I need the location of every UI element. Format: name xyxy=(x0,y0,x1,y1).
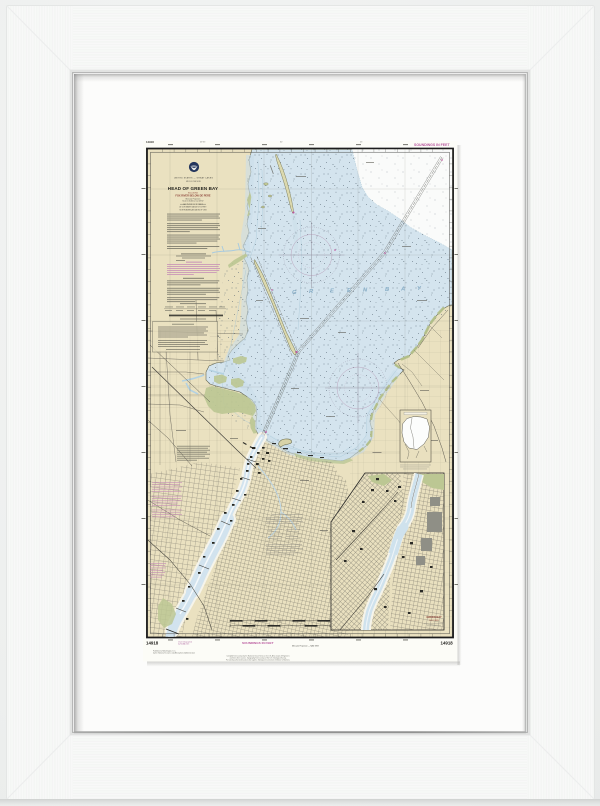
svg-text:SOUNDINGS IN FEET: SOUNDINGS IN FEET xyxy=(183,204,203,206)
svg-text:SOUNDINGS IN FEET: SOUNDINGS IN FEET xyxy=(414,143,450,147)
svg-text:14918: 14918 xyxy=(441,641,454,646)
svg-text:WISCONSIN: WISCONSIN xyxy=(429,620,440,622)
svg-text:by NOAA 2013: by NOAA 2013 xyxy=(178,643,189,646)
svg-text:A: A xyxy=(400,287,405,293)
svg-text:46°35': 46°35' xyxy=(200,141,206,143)
svg-text:14918: 14918 xyxy=(146,641,159,646)
svg-text:G: G xyxy=(292,290,297,296)
svg-text:B: B xyxy=(385,287,389,293)
svg-text:GREEN BAY: GREEN BAY xyxy=(426,615,441,619)
svg-text:WISCONSIN: WISCONSIN xyxy=(186,181,201,183)
svg-text:HEAD OF GREEN BAY: HEAD OF GREEN BAY xyxy=(168,186,218,191)
svg-text:Mercator Projection — NAD 1983: Mercator Projection — NAD 1983 xyxy=(292,645,319,648)
svg-text:SOUNDINGS IN FEET: SOUNDINGS IN FEET xyxy=(242,641,274,645)
svg-text:UNITED STATES — GREAT LAKES: UNITED STATES — GREAT LAKES xyxy=(174,177,213,180)
svg-text:by the National Oceanic and At: by the National Oceanic and Atmospheric … xyxy=(153,652,195,655)
svg-text:FOX RIVER BELOW DE PERE: FOX RIVER BELOW DE PERE xyxy=(175,194,210,197)
svg-text:14918: 14918 xyxy=(146,140,154,144)
svg-text:Scale 1:40,000 at Lat 44°32': Scale 1:40,000 at Lat 44°32' xyxy=(182,200,204,203)
